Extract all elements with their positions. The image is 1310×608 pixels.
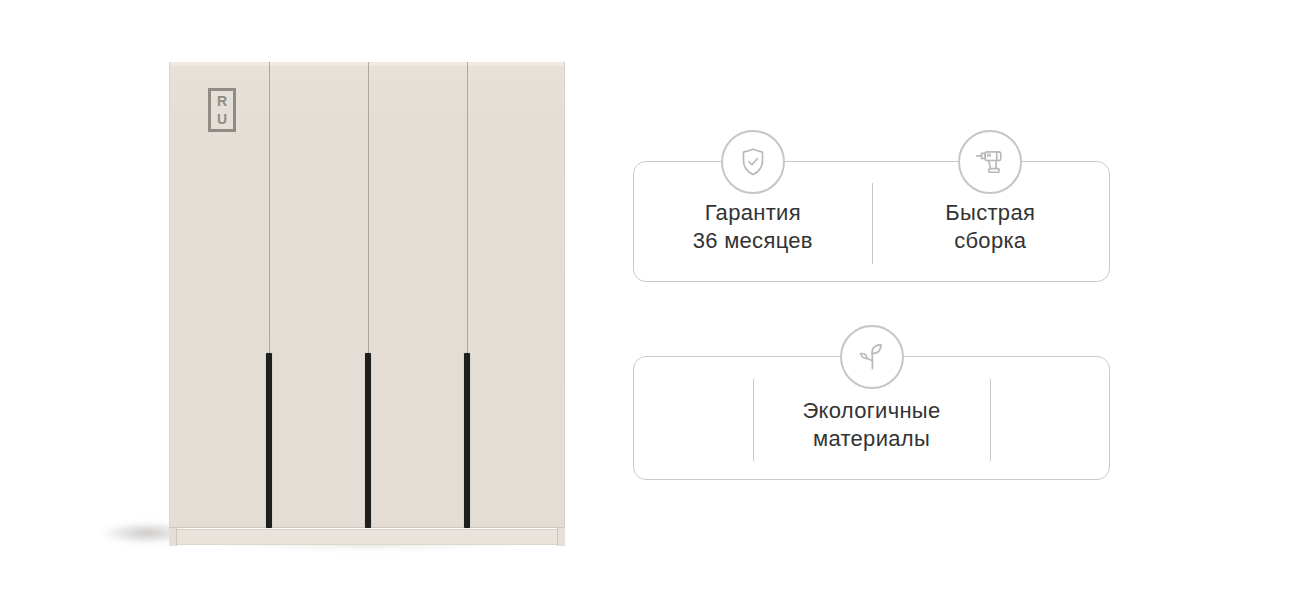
- drill-icon: [958, 130, 1022, 194]
- feature-eco-line1: Экологичные: [802, 397, 940, 425]
- plinth-foot-right: [557, 528, 565, 546]
- shield-check-icon: [721, 130, 785, 194]
- feature-assembly-line2: сборка: [954, 227, 1026, 255]
- feature-card-eco: Экологичные материалы: [633, 356, 1110, 480]
- door-handle: [464, 353, 470, 528]
- card-divider: [990, 379, 991, 461]
- wardrobe-plinth: [169, 528, 565, 546]
- wardrobe-front: R U: [169, 62, 565, 528]
- plinth-foot-left: [169, 528, 177, 546]
- plinth-face: [177, 529, 557, 545]
- card-divider: [753, 379, 754, 461]
- feature-warranty-line2: 36 месяцев: [693, 227, 813, 255]
- door-handle: [365, 353, 371, 528]
- feature-eco-line2: материалы: [813, 425, 930, 453]
- feature-card-warranty-assembly: Гарантия 36 месяцев Быстрая сборка: [633, 161, 1110, 282]
- wardrobe-top-edge: [170, 62, 564, 66]
- door-handle: [266, 353, 272, 528]
- brand-logo-letter-bottom: U: [217, 112, 227, 126]
- brand-logo: R U: [208, 88, 236, 132]
- feature-assembly-line1: Быстрая: [945, 199, 1035, 227]
- card-divider: [872, 183, 873, 264]
- leaf-icon: [840, 325, 904, 389]
- wardrobe-product-image: R U: [169, 62, 565, 546]
- brand-logo-letter-top: R: [217, 94, 227, 108]
- feature-warranty-line1: Гарантия: [705, 199, 801, 227]
- product-feature-section: R U: [0, 0, 1310, 608]
